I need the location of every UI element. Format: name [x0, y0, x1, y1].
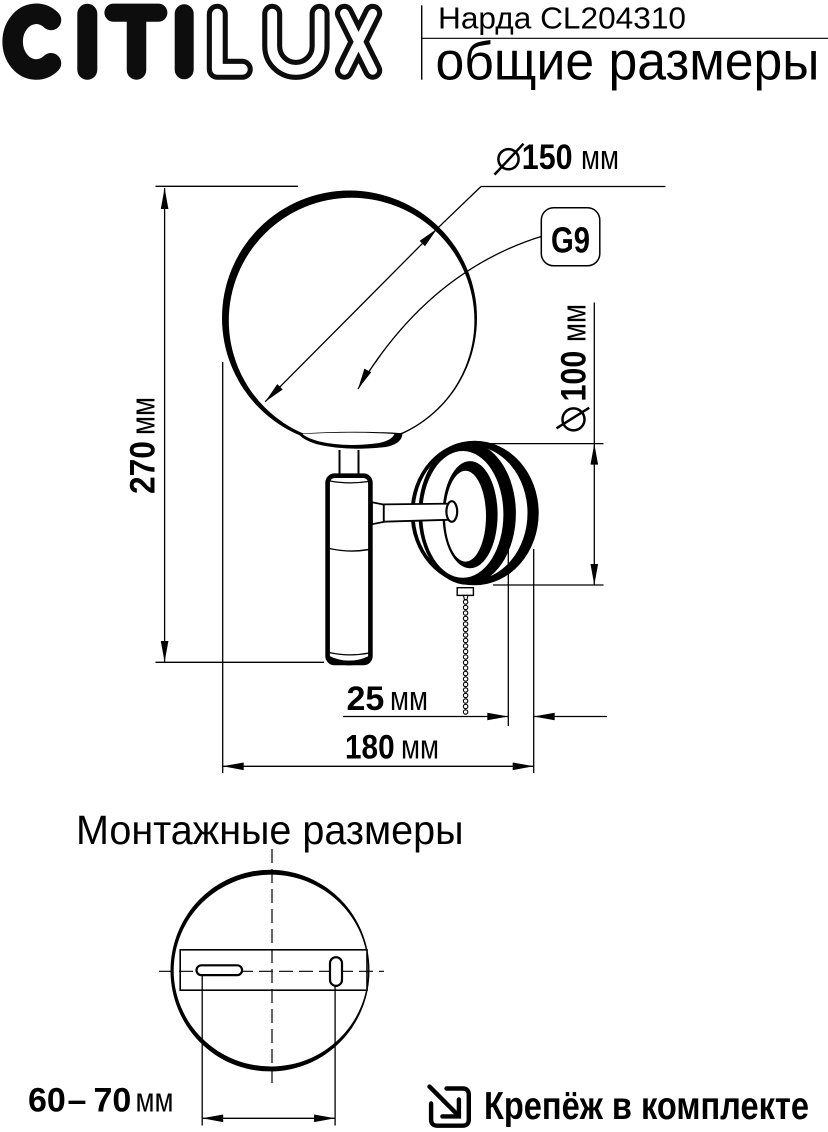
svg-text:мм: мм [136, 1082, 174, 1120]
svg-text:мм: мм [401, 728, 439, 766]
svg-text:180: 180 [345, 728, 395, 766]
svg-text:270: 270 [124, 441, 163, 494]
svg-text:общие размеры: общие размеры [436, 32, 820, 92]
svg-text:Нарда CL204310: Нарда CL204310 [438, 1, 686, 36]
svg-text:25: 25 [347, 680, 385, 718]
svg-text:мм: мм [581, 139, 619, 177]
svg-text:100: 100 [555, 351, 594, 402]
svg-text:мм: мм [390, 680, 428, 718]
svg-text:G9: G9 [551, 220, 590, 261]
svg-text:60–70: 60–70 [28, 1082, 131, 1120]
svg-text:150: 150 [522, 138, 573, 177]
svg-text:Монтажные размеры: Монтажные размеры [76, 807, 464, 853]
svg-text:мм: мм [556, 304, 594, 342]
svg-text:Крепёж в комплекте: Крепёж в комплекте [484, 1085, 809, 1128]
svg-text:мм: мм [125, 397, 163, 435]
